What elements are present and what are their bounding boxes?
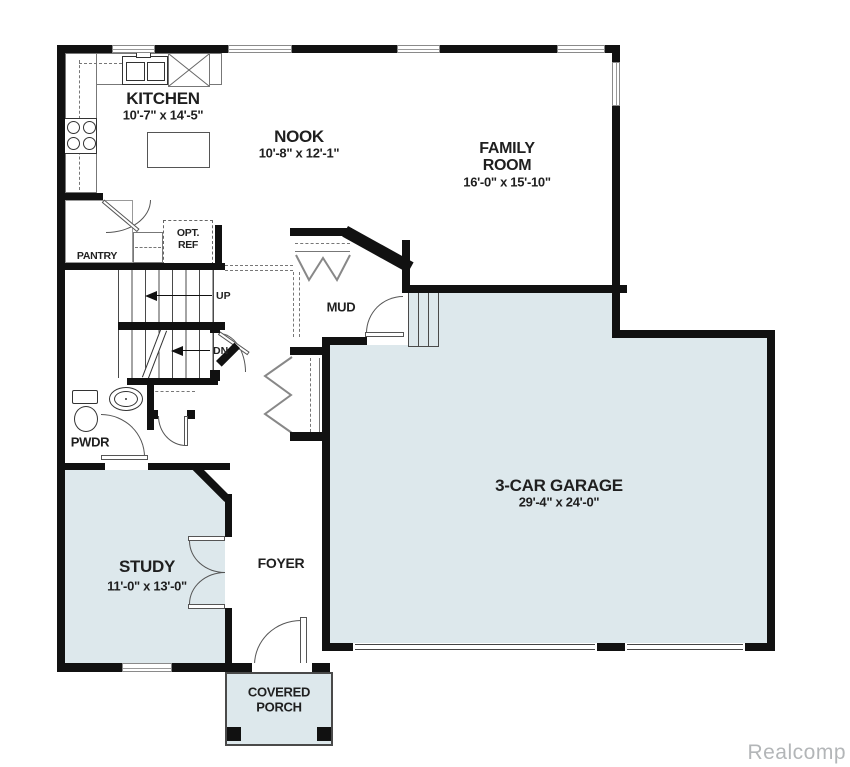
porch-label-2: PORCH <box>256 700 301 715</box>
window <box>122 663 172 672</box>
opt-ref-label-2: REF <box>178 239 198 251</box>
doorway-pwdr <box>105 463 148 470</box>
sink-basin-left <box>126 62 145 81</box>
up-arrow-line <box>156 295 212 296</box>
porch-post <box>317 727 331 741</box>
kitchen-island <box>147 132 210 168</box>
cabinet-dash <box>135 247 161 248</box>
floor-plan: KITCHEN 10'-7" x 14'-5" NOOK 10'-8" x 12… <box>0 0 850 767</box>
wall-stair-bottom <box>127 378 218 385</box>
french-door-leaf-top <box>188 536 225 541</box>
closet-shelf <box>295 251 350 252</box>
garage-door-leaf <box>365 332 404 337</box>
front-door-swing <box>254 620 301 665</box>
understair-door-swing <box>158 416 186 446</box>
wall-closet-top <box>290 347 330 355</box>
dn-arrow-head <box>171 346 183 356</box>
up-arrow-head <box>145 291 157 301</box>
wall-garage-step <box>620 330 775 338</box>
closet-shelf <box>319 358 320 432</box>
opt-ref-label-1: OPT. <box>177 227 199 239</box>
garage-door-panel-single <box>627 644 743 650</box>
cased-opening <box>225 265 293 266</box>
window <box>557 45 605 53</box>
pwdr-door-leaf <box>101 455 148 460</box>
study-label: STUDY <box>119 557 175 577</box>
family-room-label-2: ROOM <box>483 157 532 175</box>
burner <box>67 137 80 150</box>
porch-post <box>227 727 241 741</box>
foyer-label: FOYER <box>258 555 305 571</box>
burner <box>67 121 80 134</box>
wall-hall-top <box>57 263 225 270</box>
wall-pwdr-right <box>147 383 154 430</box>
doorway-front <box>252 663 312 672</box>
doorway-french <box>225 537 232 608</box>
wall-exterior-left <box>57 45 65 672</box>
bifold-doors <box>262 356 294 434</box>
dn-label: DN <box>213 345 228 357</box>
wall-garage-right <box>767 330 775 651</box>
wall-optref <box>215 225 222 270</box>
kitchen-label: KITCHEN <box>126 89 199 109</box>
nook-label: NOOK <box>274 127 324 147</box>
realcomp-watermark: Realcomp <box>747 741 846 765</box>
family-room-dims: 16'-0" x 15'-10" <box>463 175 550 190</box>
window <box>397 45 440 53</box>
wall-stub <box>210 370 220 381</box>
pwdr-label: PWDR <box>71 435 110 450</box>
porch-label-1: COVERED <box>248 685 310 700</box>
garage-steps <box>408 293 439 347</box>
front-door-leaf <box>300 617 307 665</box>
dn-arrow-line <box>182 350 210 351</box>
wall-mud-bottom <box>322 337 367 345</box>
window <box>112 45 155 53</box>
corner-cabinet-x <box>168 53 210 87</box>
up-label: UP <box>216 290 231 302</box>
pwdr-sink-drain <box>125 398 127 400</box>
sink-basin-right <box>147 62 165 81</box>
garage-floor <box>330 285 775 651</box>
wall-garage-top <box>402 285 627 293</box>
wall-stair-mid <box>118 322 225 330</box>
bifold-doors <box>295 254 351 282</box>
kitchen-dims: 10'-7" x 14'-5" <box>123 108 204 123</box>
burner <box>83 121 96 134</box>
wall-garage-left <box>322 337 330 651</box>
wall-mud-right <box>402 240 410 293</box>
understair-dash <box>150 391 195 392</box>
understair-door-leaf <box>184 416 188 446</box>
garage-label: 3-CAR GARAGE <box>495 476 623 496</box>
stairs-down-flight <box>118 330 214 378</box>
wall-closet-bottom <box>290 432 330 441</box>
stairs-up-flight <box>118 270 214 322</box>
french-door-leaf-bottom <box>188 604 225 609</box>
garage-door-swing <box>366 296 403 333</box>
toilet-bowl <box>74 406 98 432</box>
wall-stub <box>210 322 220 333</box>
cased-opening <box>225 270 293 271</box>
closet-rod <box>295 243 350 244</box>
toilet-tank <box>72 390 98 404</box>
nook-dims: 10'-8" x 12'-1" <box>259 146 340 161</box>
burner <box>83 137 96 150</box>
closet-rod <box>310 358 311 432</box>
wall-pantry-stub <box>57 193 103 200</box>
window <box>228 45 292 53</box>
cased-opening <box>293 272 294 337</box>
garage-dims: 29'-4" x 24'-0" <box>519 495 600 510</box>
window <box>612 62 620 106</box>
pantry-door-swing <box>106 200 151 233</box>
wall-stub <box>187 410 195 419</box>
garage-door-panel-double <box>355 644 595 650</box>
study-dims: 11'-0" x 13'-0" <box>107 579 187 594</box>
upper-cabinet-dash <box>79 63 122 64</box>
family-room-label-1: FAMILY <box>479 140 534 158</box>
mud-label: MUD <box>327 300 356 315</box>
pantry-label: PANTRY <box>77 250 117 262</box>
